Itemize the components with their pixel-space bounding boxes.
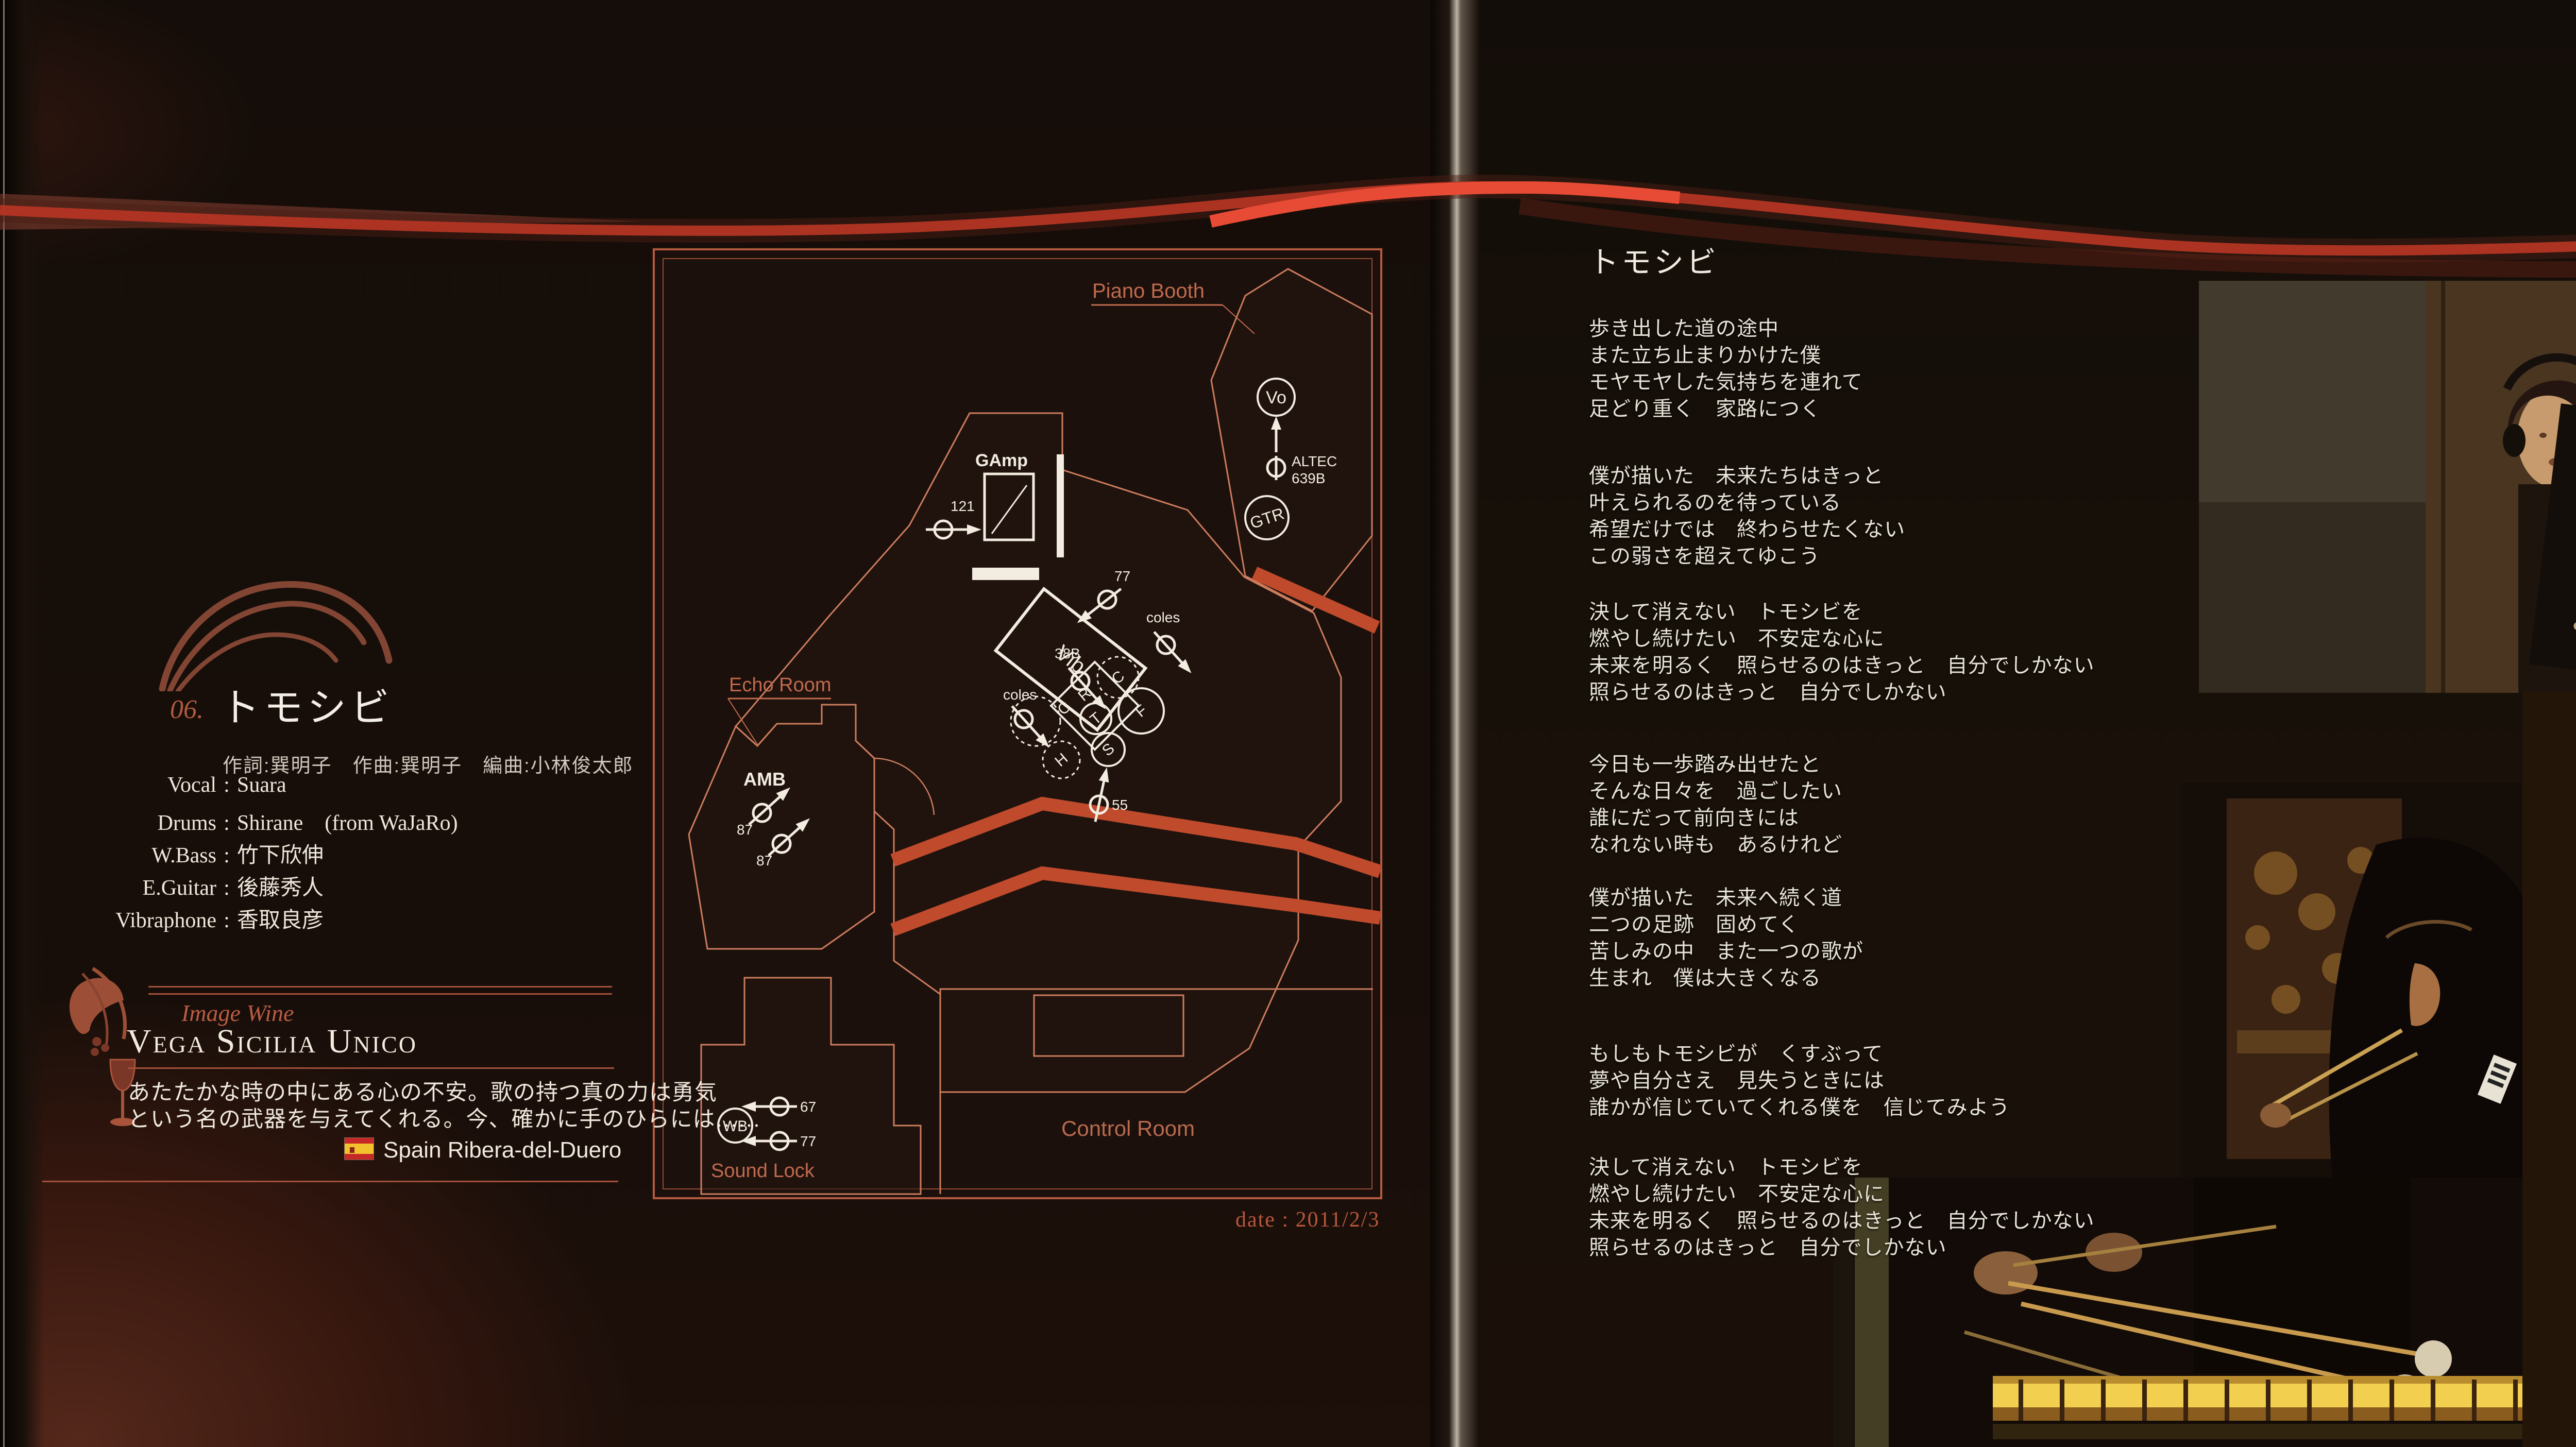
credit-name: 後藤秀人 xyxy=(237,876,324,900)
mic-label-coles-a: coles xyxy=(1146,609,1180,625)
plan-label-gamp: GAmp xyxy=(975,451,1028,470)
plan-label-vo: Vo xyxy=(1266,388,1286,407)
lyrics-line: なれない時も あるけれど xyxy=(1589,831,1842,858)
lyrics-line: 未来を明るく 照らせるのはきっと 自分でしかない xyxy=(1589,652,2095,679)
booklet-left-edge xyxy=(0,0,44,1447)
photo-bassist xyxy=(2522,691,2576,1447)
credit-row: E.Guitar:後藤秀人 xyxy=(72,870,690,901)
credit-colon: : xyxy=(216,876,237,900)
baffle-panel-vertical xyxy=(1057,454,1064,557)
wine-rule-under-name xyxy=(128,1067,614,1069)
lyrics-line: 僕が描いた 未来たちはきっと xyxy=(1589,463,1905,489)
plan-label-sound-lock: Sound Lock xyxy=(711,1160,815,1182)
mic-label-38b: 38B xyxy=(1055,645,1080,661)
photo-vibraphonist xyxy=(2180,783,2572,1180)
credit-role: Drums xyxy=(72,811,216,836)
wine-rule-bottom xyxy=(42,1181,618,1182)
baffle-panel-horizontal xyxy=(972,568,1039,580)
lyrics-line: 誰にだって前向きには xyxy=(1589,805,1842,831)
mic-label-77-wb: 77 xyxy=(800,1133,816,1149)
wine-rule-top-1 xyxy=(148,986,612,988)
lyrics-line: 希望だけでは 終わらせたくない xyxy=(1589,516,1905,543)
lyrics-line: 燃やし続けたい 不安定な心に xyxy=(1589,625,2095,652)
lyrics-line: 歩き出した道の途中 xyxy=(1589,315,1863,342)
credit-role: W.Bass xyxy=(72,843,216,868)
credit-role: E.Guitar xyxy=(72,876,216,900)
lyrics-line: 未来を明るく 照らせるのはきっと 自分でしかない xyxy=(1589,1207,2095,1234)
plan-label-control-room: Control Room xyxy=(1061,1116,1195,1140)
plan-label-echo-room: Echo Room xyxy=(729,674,832,696)
lyrics-line: 誰かが信じていてくれる僕を 信じてみよう xyxy=(1589,1094,2010,1121)
center-fold xyxy=(1430,0,1480,1447)
credit-row: W.Bass:竹下欣伸 xyxy=(72,838,690,869)
lyrics-line: もしもトモシビが くすぶって xyxy=(1589,1041,2010,1067)
mic-label-87-a: 87 xyxy=(737,822,753,838)
lyrics-line: モヤモヤした気持ちを連れて xyxy=(1589,369,1863,396)
lyrics-line: 苦しみの中 また一つの歌が xyxy=(1589,938,1863,965)
lyrics-line: 照らせるのはきっと 自分でしかない xyxy=(1589,679,2095,706)
lyrics-line: 叶えられるのを待っている xyxy=(1589,489,1905,516)
lyrics-stanza-5: 僕が描いた 未来へ続く道 二つの足跡 固めてく 苦しみの中 また一つの歌が 生ま… xyxy=(1589,884,1863,992)
lyrics-line: 燃やし続けたい 不安定な心に xyxy=(1589,1181,2095,1207)
mic-label-67: 67 xyxy=(800,1099,816,1115)
lyrics-line: 決して消えない トモシビを xyxy=(1589,1154,2095,1181)
wine-origin: Spain Ribera-del-Duero xyxy=(383,1137,621,1163)
credit-name: Shirane (from WaJaRo) xyxy=(237,811,458,835)
credit-row: Vibraphone:香取良彦 xyxy=(72,903,690,934)
spain-flag-icon xyxy=(344,1137,374,1160)
mic-label-121: 121 xyxy=(951,498,975,514)
credit-colon: : xyxy=(216,843,237,868)
wine-description-line2: という名の武器を与えてくれる。今、確かに手のひらには…… xyxy=(128,1101,761,1133)
lyrics-line: また立ち止まりかけた僕 xyxy=(1589,342,1863,369)
lyrics-stanza-4: 今日も一歩踏み出せたと そんな日々を 過ごしたい 誰にだって前向きには なれない… xyxy=(1589,751,1842,858)
lyrics-title: トモシビ xyxy=(1589,238,1719,281)
credit-colon: : xyxy=(216,908,237,933)
mic-label-639b: 639B xyxy=(1292,470,1325,486)
lyrics-stanza-3: 決して消えない トモシビを 燃やし続けたい 不安定な心に 未来を明るく 照らせる… xyxy=(1589,599,2095,706)
lyrics-stanza-6: もしもトモシビが くすぶって 夢や自分さえ 見失うときには 誰かが信じていてくれ… xyxy=(1589,1041,2010,1121)
credit-name: 香取良彦 xyxy=(237,909,324,932)
lyrics-line: 生まれ 僕は大きくなる xyxy=(1589,965,1863,992)
track-title: トモシビ xyxy=(221,676,394,733)
lyrics-line: 今日も一歩踏み出せたと xyxy=(1589,751,1842,778)
lyrics-line: 夢や自分さえ 見失うときには xyxy=(1589,1067,2010,1094)
credit-name: 竹下欣伸 xyxy=(237,844,324,867)
lyrics-stanza-7: 決して消えない トモシビを 燃やし続けたい 不安定な心に 未来を明るく 照らせる… xyxy=(1589,1154,2095,1261)
lyrics-line: 決して消えない トモシビを xyxy=(1589,599,2095,625)
lyrics-line: 僕が描いた 未来へ続く道 xyxy=(1589,884,1863,911)
photo-vocalist xyxy=(2199,281,2576,693)
mic-label-87-b: 87 xyxy=(756,853,772,869)
wine-name: Vega Sicilia Unico xyxy=(127,1022,417,1061)
lyrics-line: そんな日々を 過ごしたい xyxy=(1589,778,1842,805)
credit-row: Drums:Shirane (from WaJaRo) xyxy=(72,805,690,837)
studio-floor-plan: Piano Booth Echo Room Sound Lock Control… xyxy=(652,247,1383,1200)
lyrics-stanza-1: 歩き出した道の途中 また立ち止まりかけた僕 モヤモヤした気持ちを連れて 足どり重… xyxy=(1589,315,1863,422)
credit-role: Vibraphone xyxy=(72,908,216,933)
plan-label-piano-booth: Piano Booth xyxy=(1092,280,1205,302)
lyrics-line: 照らせるのはきっと 自分でしかない xyxy=(1589,1234,2095,1261)
mic-label-77-vib: 77 xyxy=(1114,568,1130,584)
mic-label-altec: ALTEC xyxy=(1292,453,1337,469)
lyrics-line: この弱さを超えてゆこう xyxy=(1589,543,1905,570)
lyrics-line: 二つの足跡 固めてく xyxy=(1589,911,1863,938)
mic-label-coles-b: coles xyxy=(1003,687,1037,703)
plan-label-amb: AMB xyxy=(743,769,786,790)
lyrics-stanza-2: 僕が描いた 未来たちはきっと 叶えられるのを待っている 希望だけでは 終わらせた… xyxy=(1589,463,1905,570)
wine-rule-top-2 xyxy=(148,993,612,995)
swoosh-ornament xyxy=(155,557,397,691)
booklet-spread: 06. トモシビ 作詞:巽明子 作曲:巽明子 編曲:小林俊太郎 Vocal:Su… xyxy=(0,0,2576,1447)
track-number: 06. xyxy=(170,694,204,725)
credit-colon: : xyxy=(216,811,237,836)
credit-row: Vocal:Suara xyxy=(72,773,690,797)
credit-name: Suara xyxy=(237,773,286,797)
page-edge-highlight xyxy=(3,0,5,1447)
mic-label-55: 55 xyxy=(1112,797,1128,813)
lyrics-line: 足どり重く 家路につく xyxy=(1589,396,1863,422)
vibraphone-bars xyxy=(1993,1376,2572,1439)
credit-role: Vocal xyxy=(72,773,216,797)
credit-colon: : xyxy=(216,773,237,797)
session-date: date : 2011/2/3 xyxy=(1235,1207,1380,1232)
